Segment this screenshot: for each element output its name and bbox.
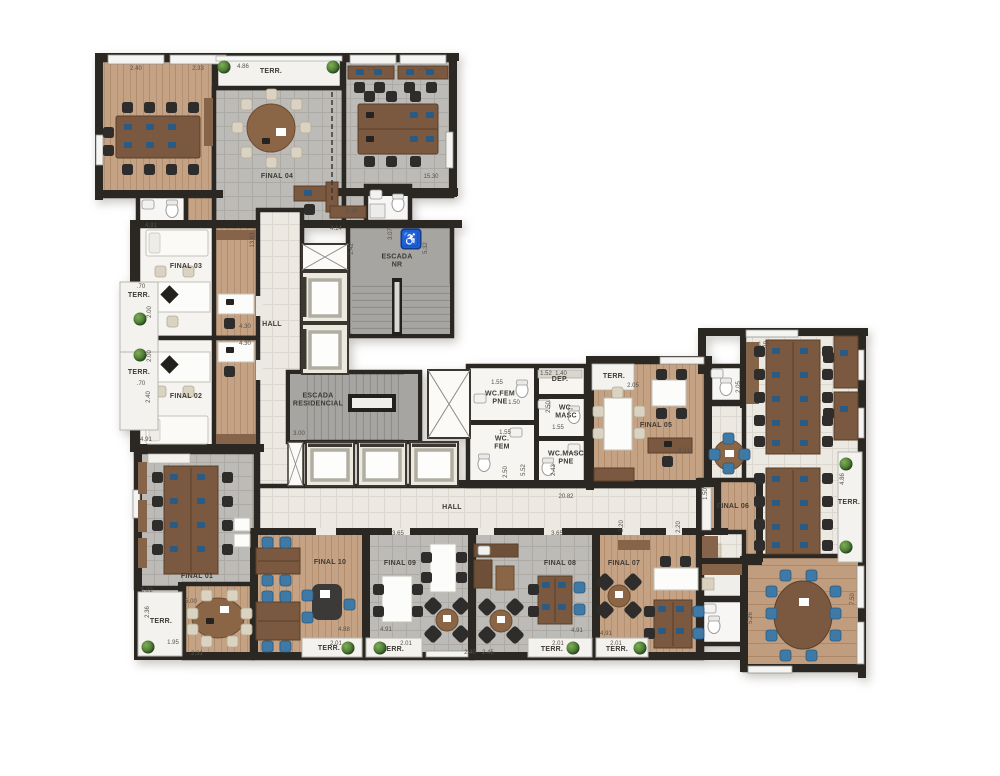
room-label-terr-left-2: TERR. (128, 369, 150, 377)
dimension-label: 4.88 (338, 627, 350, 633)
dimension-label: 1.42 (349, 243, 355, 255)
dimension-label: 1.50 (703, 488, 709, 500)
dimension-label: 2.00 (147, 306, 153, 318)
floor-plan-page: TERR.FINAL 04FINAL 03TERR.TERR.FINAL 02H… (0, 0, 1000, 776)
dimension-label: 4.91 (380, 627, 392, 633)
dimension-label: 2.01 (330, 641, 342, 647)
plant-icon (327, 61, 340, 74)
room-label-hall-vertical: HALL (262, 321, 282, 329)
annotation-overlay: TERR.FINAL 04FINAL 03TERR.TERR.FINAL 02H… (0, 0, 1000, 776)
room-label-escada-nr: ESCADA NR (381, 254, 412, 271)
room-label-terr-top: TERR. (260, 68, 282, 76)
dimension-label: 3.00 (293, 431, 305, 437)
dimension-label: 2.40 (130, 66, 142, 72)
dimension-label: 1.55 (552, 425, 564, 431)
dimension-label: 20.82 (558, 494, 573, 500)
room-label-final-05: FINAL 05 (640, 422, 672, 430)
plant-icon (840, 541, 853, 554)
room-label-final-01: FINAL 01 (181, 573, 213, 581)
plant-icon (840, 458, 853, 471)
dimension-label: 4.30 (239, 341, 251, 347)
dimension-label: 2.45 (482, 650, 494, 656)
plant-icon (142, 641, 155, 654)
dimension-label: 3.65 (551, 531, 563, 537)
room-label-escada-residencial: ESCADA RESIDENCIAL (293, 393, 343, 410)
dimension-label: 1.55 (758, 342, 770, 348)
room-label-terr-08: TERR. (541, 646, 563, 654)
dimension-label: 4.30 (239, 324, 251, 330)
dimension-label: 4.91 (145, 223, 157, 229)
dimension-label: 4.86 (237, 64, 249, 70)
plant-icon (634, 642, 647, 655)
room-label-dep: DEP. (552, 376, 568, 384)
dimension-label: 2.40 (418, 66, 430, 72)
room-label-final-09: FINAL 09 (384, 560, 416, 568)
wheelchair-accessibility-icon: ♿ (401, 229, 422, 250)
dimension-label: 2.00 (147, 350, 153, 362)
room-label-terr-07: TERR. (606, 646, 628, 654)
dimension-label: 7.50 (850, 593, 856, 605)
dimension-label: 1.50 (508, 400, 520, 406)
dimension-label: 1.95 (167, 640, 179, 646)
room-label-final-06: FINAL 06 (717, 503, 749, 511)
dimension-label: 2.51 (367, 66, 379, 72)
dimension-label: 3.07 (388, 228, 394, 240)
plant-icon (567, 642, 580, 655)
dimension-label: 15.30 (423, 174, 438, 180)
dimension-label: 4.14 (330, 226, 342, 232)
room-label-terr-06: TERR. (838, 499, 860, 507)
dimension-label: 5.00 (185, 599, 197, 605)
room-label-wc-fem: WC. FEM (494, 436, 510, 453)
dimension-label: 2.50 (546, 401, 552, 413)
dimension-label: 3.65 (392, 531, 404, 537)
room-label-final-04: FINAL 04 (261, 173, 293, 181)
dimension-label: 2.05 (736, 381, 742, 393)
dimension-label: 5.36 (346, 209, 358, 215)
dimension-label: 1.55 (499, 430, 511, 436)
dimension-label: 2.01 (610, 641, 622, 647)
room-label-final-07: FINAL 07 (608, 560, 640, 568)
room-label-final-03: FINAL 03 (170, 263, 202, 271)
dimension-label: 2.05 (627, 383, 639, 389)
plant-icon (134, 349, 147, 362)
dimension-label: 2.36 (145, 606, 151, 618)
dimension-label: 2.40 (146, 391, 152, 403)
room-label-terr-01: TERR. (150, 618, 172, 626)
dimension-label: 13.63 (250, 232, 256, 247)
plant-icon (134, 313, 147, 326)
dimension-label: 5.52 (521, 464, 527, 476)
dimension-label: 4.86 (840, 473, 846, 485)
dimension-label: 2.40 (464, 650, 476, 656)
dimension-label: 5.26 (748, 612, 754, 624)
dimension-label: 2.43 (551, 464, 557, 476)
dimension-label: 2.20 (619, 520, 625, 532)
dimension-label: 5.22 (141, 588, 153, 594)
room-label-terr-left-1: TERR. (128, 292, 150, 300)
dimension-label: .70 (137, 381, 145, 387)
dimension-label: 4.91 (140, 437, 152, 443)
plant-icon (374, 642, 387, 655)
dimension-label: 2.33 (192, 66, 204, 72)
dimension-label: 2.31 (191, 651, 203, 657)
dimension-label: 1.55 (491, 380, 503, 386)
dimension-label: .70 (137, 284, 145, 290)
dimension-label: 2.01 (400, 641, 412, 647)
dimension-label: 2.20 (676, 521, 682, 533)
room-label-final-02: FINAL 02 (170, 393, 202, 401)
dimension-label: 2.50 (503, 466, 509, 478)
room-label-wc-masc: WC. MASC (555, 405, 577, 422)
plant-icon (342, 642, 355, 655)
room-label-final-08: FINAL 08 (544, 560, 576, 568)
plant-icon (218, 61, 231, 74)
dimension-label: 4.91 (600, 631, 612, 637)
dimension-label: 4.91 (571, 628, 583, 634)
room-label-final-10: FINAL 10 (314, 559, 346, 567)
dimension-label: 2.01 (552, 641, 564, 647)
dimension-label: 5.32 (423, 242, 429, 254)
room-label-hall-horizontal: HALL (442, 504, 462, 512)
dimension-label: 1.52 (540, 371, 552, 377)
dimension-label: 4.91 (678, 448, 690, 454)
room-label-terr-05: TERR. (603, 373, 625, 381)
dimension-label: 1.40 (555, 371, 567, 377)
